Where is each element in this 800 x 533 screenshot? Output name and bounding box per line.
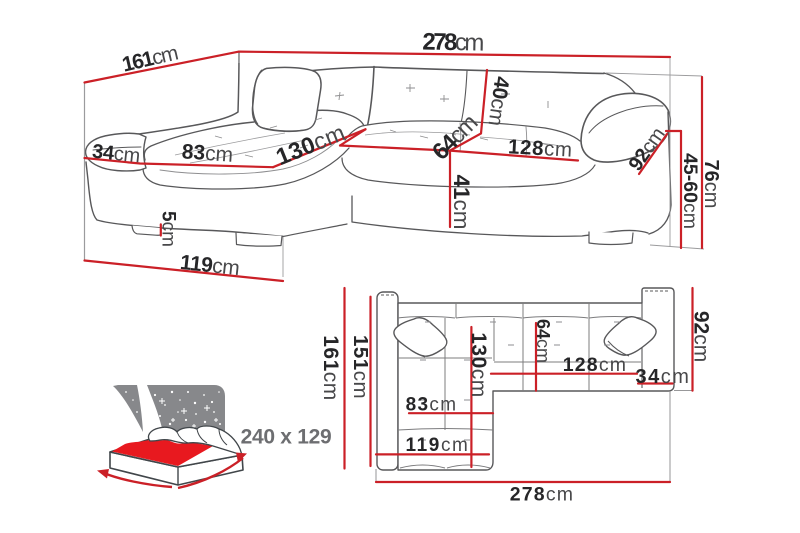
svg-text:278cm: 278cm: [422, 28, 484, 56]
svg-text:130cm: 130cm: [467, 332, 490, 398]
svg-text:128cm: 128cm: [563, 354, 628, 376]
svg-text:151cm: 151cm: [349, 335, 372, 399]
svg-text:83cm: 83cm: [181, 140, 234, 167]
svg-text:45-60cm: 45-60cm: [679, 153, 701, 229]
svg-text:64cm: 64cm: [533, 319, 553, 363]
svg-text:92cm: 92cm: [690, 311, 713, 362]
svg-text:5cm: 5cm: [158, 211, 179, 247]
svg-text:128cm: 128cm: [508, 135, 574, 161]
svg-text:278cm: 278cm: [510, 484, 575, 506]
svg-text:119cm: 119cm: [406, 435, 470, 456]
svg-text:41cm: 41cm: [449, 174, 474, 229]
svg-text:34cm: 34cm: [636, 366, 691, 388]
svg-text:240 x 129: 240 x 129: [241, 426, 332, 449]
svg-text:161cm: 161cm: [319, 335, 342, 401]
svg-text:76cm: 76cm: [700, 160, 722, 209]
svg-text:83cm: 83cm: [406, 395, 458, 416]
